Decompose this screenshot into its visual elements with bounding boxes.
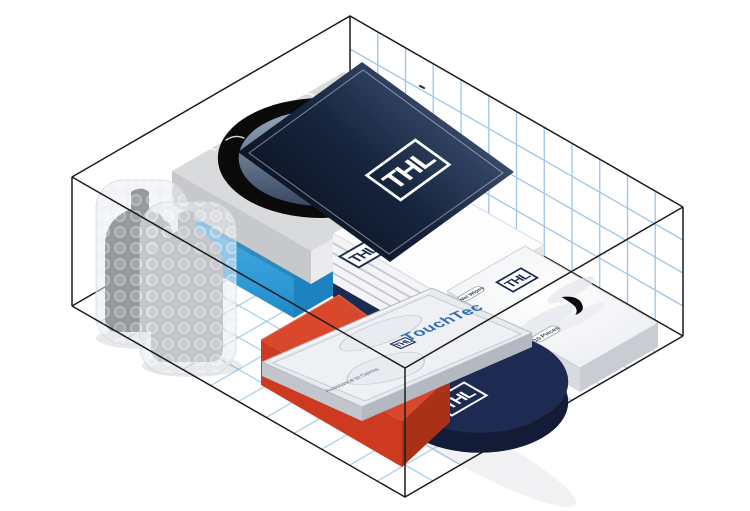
isometric-illustration: THL THL Wet Wipes [0,0,750,511]
container-contents: THL THL Wet Wipes [96,62,658,511]
